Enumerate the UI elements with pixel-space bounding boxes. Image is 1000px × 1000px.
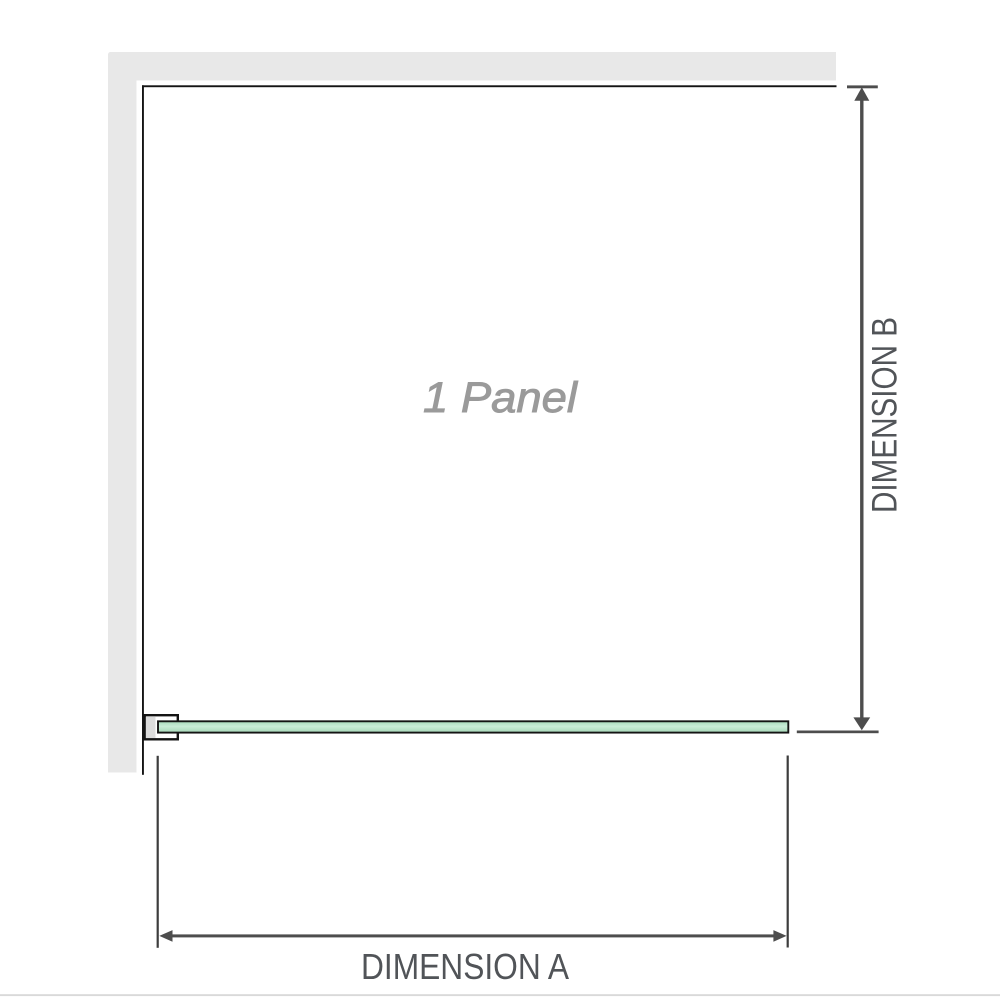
svg-text:DIMENSION B: DIMENSION B bbox=[866, 317, 905, 513]
svg-text:DIMENSION A: DIMENSION A bbox=[361, 946, 569, 987]
svg-text:1 Panel: 1 Panel bbox=[423, 374, 579, 422]
